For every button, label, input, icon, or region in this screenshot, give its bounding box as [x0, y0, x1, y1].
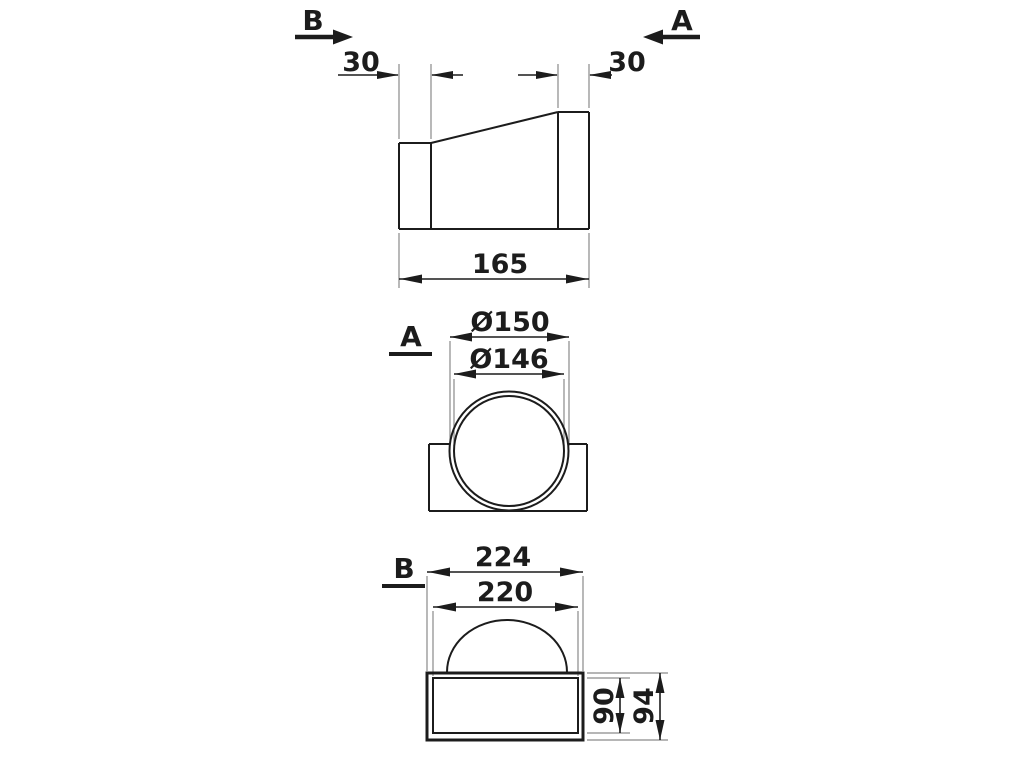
dim-outer-width: 224	[427, 542, 583, 577]
dim-inner-height-value: 90	[589, 687, 620, 725]
dim-outer-width-arrow-left-icon	[428, 568, 450, 577]
view-b-label-underline	[382, 584, 425, 588]
dim-length-value: 165	[472, 249, 528, 280]
section-marker-b: B	[295, 4, 353, 45]
dim-outer-diameter: Ø150	[450, 307, 569, 342]
drawing-page: B A 30	[0, 0, 1024, 768]
dim-right-collar: 30	[518, 47, 646, 79]
view-a-pipe-inner-circle	[454, 396, 564, 506]
view-b-label-letter: B	[393, 552, 414, 585]
dim-left-collar-arrow-left-icon	[431, 71, 453, 79]
dim-outer-height-value: 94	[629, 687, 660, 725]
dim-inner-width-arrow-left-icon	[434, 603, 456, 612]
section-b-letter: B	[302, 4, 323, 37]
section-marker-a: A	[643, 4, 700, 45]
dim-length: 165	[399, 249, 589, 284]
dim-right-collar-value: 30	[608, 47, 646, 78]
dim-inner-width-arrow-right-icon	[555, 603, 577, 612]
dim-left-collar: 30	[338, 47, 463, 79]
dim-length-arrow-right-icon	[566, 275, 588, 284]
dim-outer-width-value: 224	[475, 542, 531, 573]
view-b: B 224 220	[382, 542, 668, 740]
view-a-label-underline	[389, 352, 432, 356]
dim-left-collar-arrow-right-icon	[377, 71, 399, 79]
dim-inner-diameter-value: Ø146	[469, 344, 548, 375]
view-a-label: A	[389, 320, 432, 356]
section-b-arrow-icon	[333, 30, 353, 45]
dim-left-collar-value: 30	[342, 47, 380, 78]
dim-length-arrow-left-icon	[400, 275, 422, 284]
dim-outer-height: 94	[629, 673, 665, 740]
view-a: A Ø150 Ø146	[389, 307, 587, 511]
side-view-outline	[399, 112, 589, 229]
dim-inner-height: 90	[589, 678, 625, 733]
view-b-pipe-arc	[447, 620, 567, 672]
technical-drawing-canvas: B A 30	[0, 0, 1024, 768]
side-view: 30 30 165	[338, 47, 646, 288]
dim-inner-width: 220	[433, 577, 578, 612]
dim-right-collar-arrow-right-icon	[536, 71, 558, 79]
section-a-letter: A	[671, 4, 693, 37]
view-b-duct-inner-rect	[433, 678, 578, 733]
dim-outer-width-arrow-right-icon	[560, 568, 582, 577]
view-a-pipe-outer-circle	[450, 392, 569, 511]
dim-inner-diameter: Ø146	[454, 344, 564, 379]
section-a-arrow-icon	[643, 30, 663, 45]
dim-outer-diameter-arrow-left-icon	[450, 333, 472, 342]
view-b-label: B	[382, 552, 425, 588]
dim-outer-diameter-value: Ø150	[470, 307, 549, 338]
dim-outer-diameter-arrow-right-icon	[547, 333, 569, 342]
dim-inner-width-value: 220	[477, 577, 533, 608]
view-b-duct-outer-rect	[427, 673, 583, 740]
view-a-label-letter: A	[400, 320, 422, 353]
